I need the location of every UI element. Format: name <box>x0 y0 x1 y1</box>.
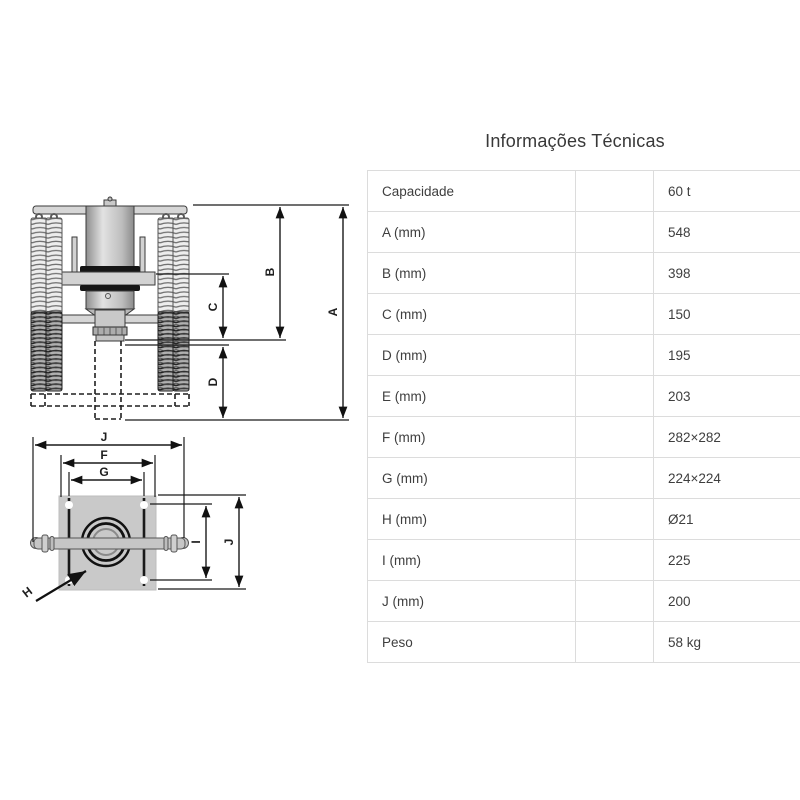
dim-label-A: A <box>326 307 340 316</box>
spec-label-cell: H (mm) <box>368 499 576 540</box>
spec-value-cell: 282×282 <box>654 417 800 458</box>
dim-label-B: B <box>263 267 277 276</box>
dim-label-G: G <box>99 465 108 479</box>
spec-label-cell: E (mm) <box>368 376 576 417</box>
table-row: A (mm) 548 <box>368 212 800 253</box>
spec-value-cell: 225 <box>654 540 800 581</box>
spec-empty-cell <box>576 581 654 622</box>
spec-value-cell: 548 <box>654 212 800 253</box>
dim-label-J-right: J <box>222 539 236 546</box>
dim-label-D: D <box>206 377 220 386</box>
spec-table: Capacidade 60 t A (mm) 548 B (mm) 398 C … <box>367 170 800 663</box>
spec-label-cell: D (mm) <box>368 335 576 376</box>
spec-label-cell: I (mm) <box>368 540 576 581</box>
table-row: G (mm) 224×224 <box>368 458 800 499</box>
spec-label-cell: G (mm) <box>368 458 576 499</box>
dim-label-H: H <box>20 584 35 600</box>
table-row: C (mm) 150 <box>368 294 800 335</box>
table-row: E (mm) 203 <box>368 376 800 417</box>
spec-value-cell: 398 <box>654 253 800 294</box>
dim-label-F: F <box>100 448 107 462</box>
technical-drawing: A B C D <box>0 0 360 650</box>
spec-empty-cell <box>576 376 654 417</box>
spec-label-cell: A (mm) <box>368 212 576 253</box>
spec-value-cell: 58 kg <box>654 622 800 663</box>
side-pin <box>140 237 145 272</box>
spec-empty-cell <box>576 540 654 581</box>
table-row: Peso 58 kg <box>368 622 800 663</box>
handle-bar <box>31 535 189 552</box>
table-row: F (mm) 282×282 <box>368 417 800 458</box>
spec-empty-cell <box>576 499 654 540</box>
side-view: A B C D <box>31 197 349 420</box>
flange-plate <box>62 272 155 285</box>
spec-value-cell: 150 <box>654 294 800 335</box>
table-row: J (mm) 200 <box>368 581 800 622</box>
spec-label-cell: Capacidade <box>368 171 576 212</box>
spec-value-cell: 195 <box>654 335 800 376</box>
spec-empty-cell <box>576 212 654 253</box>
spec-value-cell: 60 t <box>654 171 800 212</box>
spec-label-cell: C (mm) <box>368 294 576 335</box>
main-cylinder <box>86 206 134 268</box>
spec-empty-cell <box>576 417 654 458</box>
table-row: B (mm) 398 <box>368 253 800 294</box>
spec-value-cell: 203 <box>654 376 800 417</box>
spec-value-cell: Ø21 <box>654 499 800 540</box>
dim-label-J-top: J <box>101 430 108 444</box>
product-spec-page: { "title": "Informações Técnicas", "tabl… <box>0 0 800 800</box>
spec-empty-cell <box>576 335 654 376</box>
spec-empty-cell <box>576 458 654 499</box>
spec-empty-cell <box>576 294 654 335</box>
spec-label-cell: J (mm) <box>368 581 576 622</box>
spec-value-cell: 224×224 <box>654 458 800 499</box>
table-row: I (mm) 225 <box>368 540 800 581</box>
plan-view: J F G I J H <box>20 430 246 601</box>
spec-label-cell: Peso <box>368 622 576 663</box>
lower-body <box>86 291 134 309</box>
spec-value-cell: 200 <box>654 581 800 622</box>
ram <box>95 310 125 327</box>
table-row: D (mm) 195 <box>368 335 800 376</box>
spec-label-cell: F (mm) <box>368 417 576 458</box>
side-pin <box>72 237 77 272</box>
table-row: Capacidade 60 t <box>368 171 800 212</box>
spec-empty-cell <box>576 622 654 663</box>
dim-label-C: C <box>206 302 220 311</box>
spec-empty-cell <box>576 253 654 294</box>
spec-label-cell: B (mm) <box>368 253 576 294</box>
table-row: H (mm) Ø21 <box>368 499 800 540</box>
spec-empty-cell <box>576 171 654 212</box>
dim-label-I: I <box>189 540 203 543</box>
page-title: Informações Técnicas <box>367 131 783 152</box>
